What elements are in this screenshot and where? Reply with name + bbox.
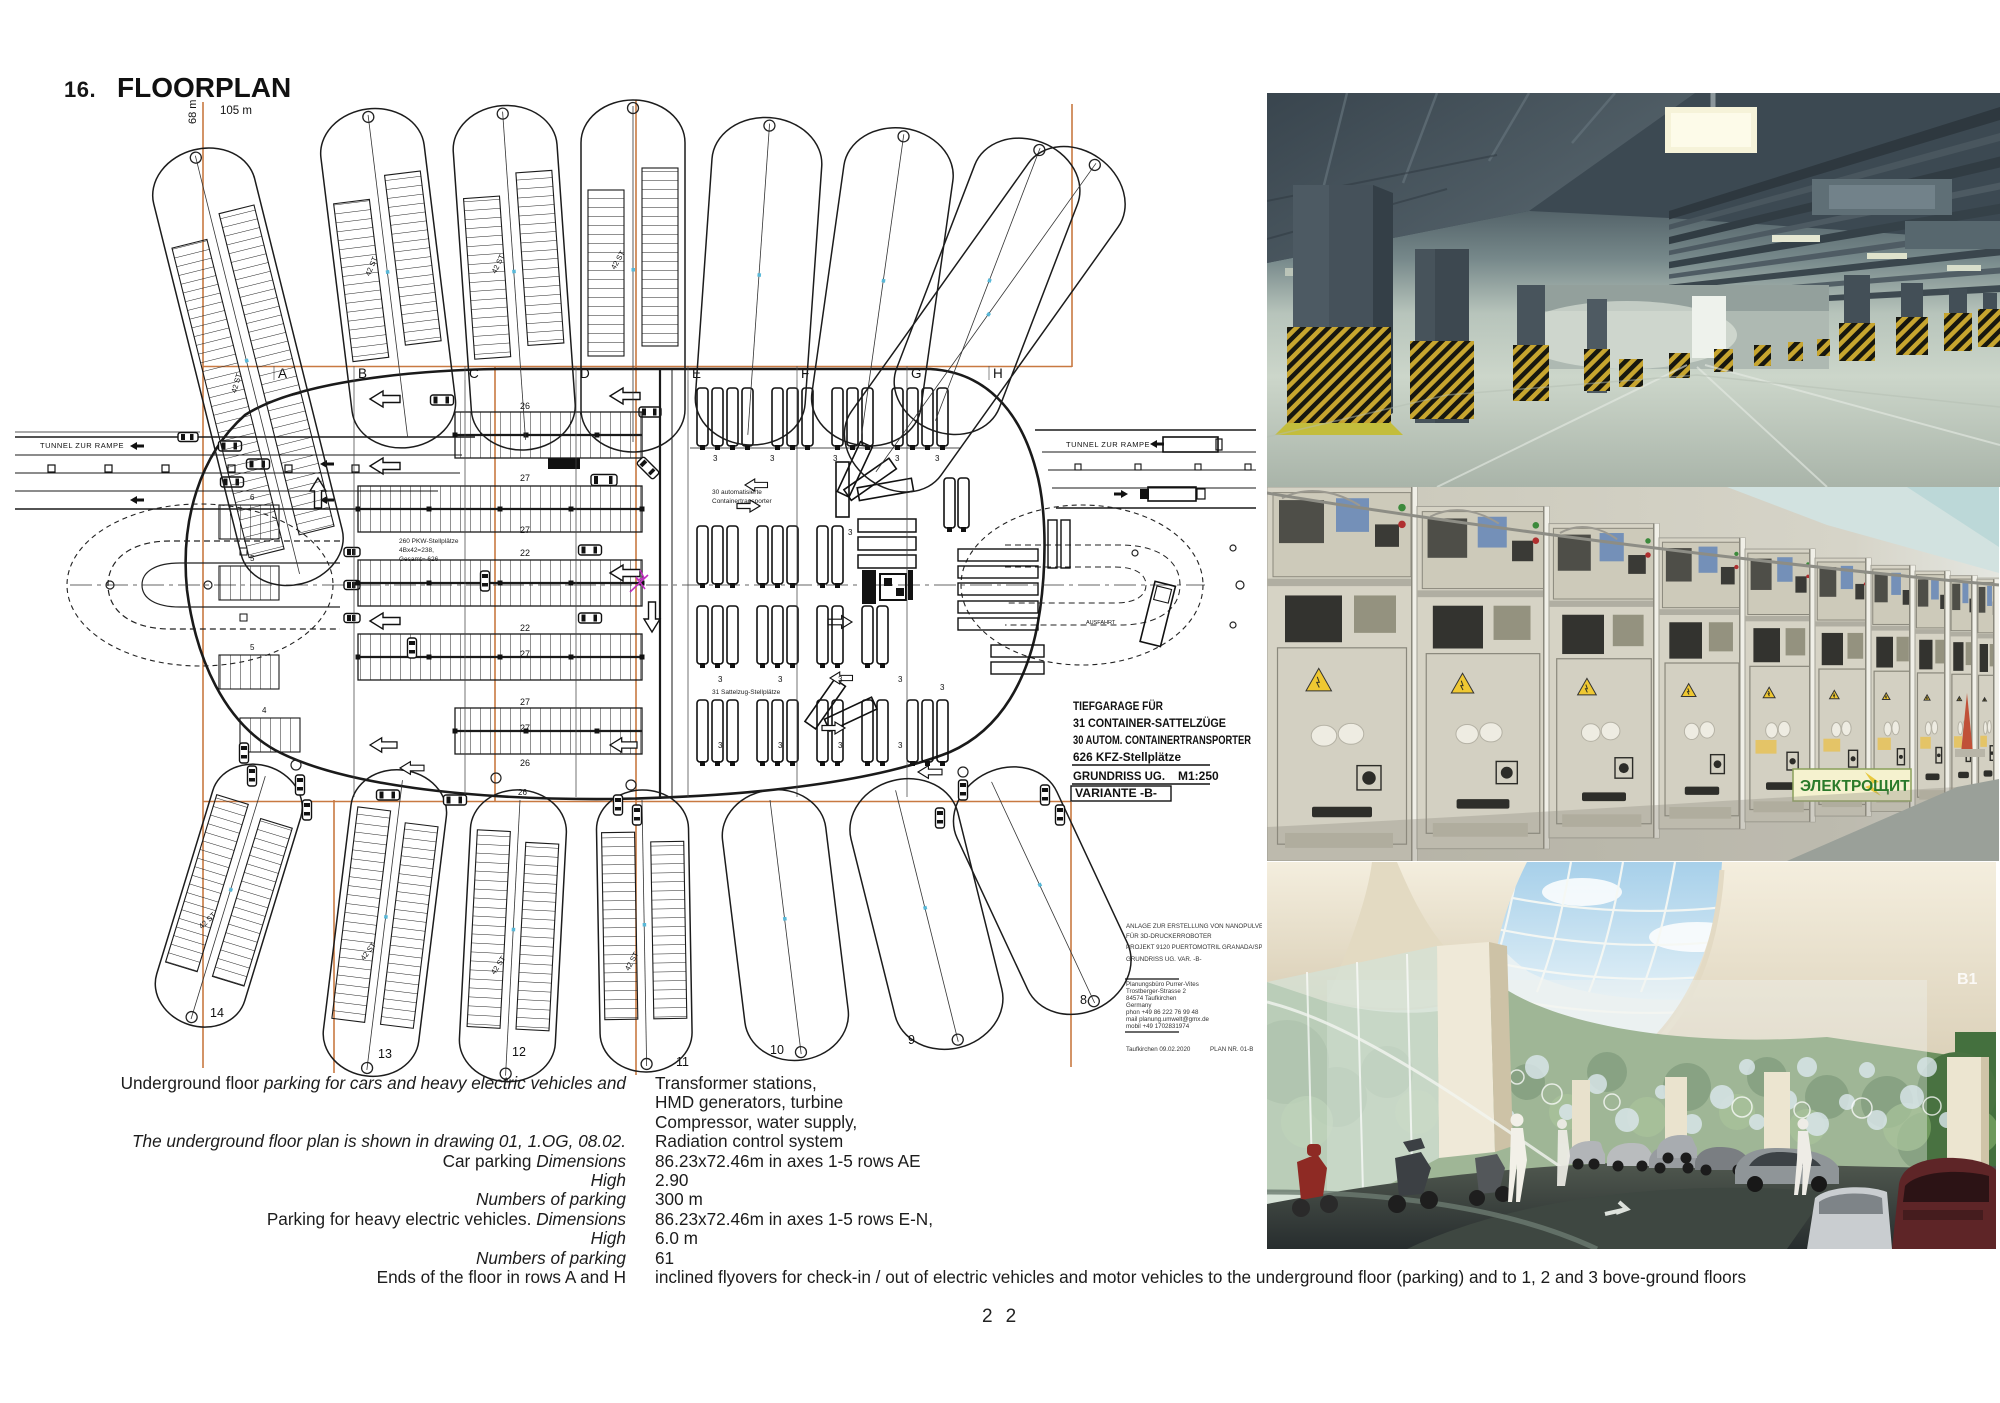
svg-text:B1: B1: [1957, 971, 1978, 988]
svg-text:Planungsbüro Purrer-Vites: Planungsbüro Purrer-Vites: [1126, 981, 1199, 988]
svg-text:PLAN NR. 01-B: PLAN NR. 01-B: [1210, 1046, 1253, 1053]
svg-text:M1:250: M1:250: [1178, 769, 1219, 783]
svg-text:GRUNDRISS UG.: GRUNDRISS UG.: [1073, 769, 1165, 783]
svg-text:13: 13: [378, 1047, 392, 1061]
svg-text:Trostberger-Strasse 2: Trostberger-Strasse 2: [1126, 988, 1187, 995]
svg-text:PROJEKT 9120 PUERTOMOTRIL GRAN: PROJEKT 9120 PUERTOMOTRIL GRANADA/SPANIE…: [1126, 944, 1262, 951]
svg-text:3: 3: [898, 675, 903, 684]
svg-text:Gesamt= 626: Gesamt= 626: [399, 556, 439, 563]
svg-text:26: 26: [520, 401, 530, 411]
svg-text:3: 3: [718, 741, 723, 750]
svg-text:27: 27: [520, 697, 530, 707]
svg-text:C: C: [469, 366, 479, 381]
svg-text:105 m: 105 m: [220, 105, 252, 117]
svg-text:3: 3: [770, 454, 775, 463]
svg-text:626 KFZ-Stellplätze: 626 KFZ-Stellplätze: [1073, 750, 1181, 764]
svg-text:3: 3: [898, 741, 903, 750]
svg-text:27: 27: [520, 525, 530, 535]
svg-text:14: 14: [210, 1006, 224, 1020]
svg-text:31 Sattelzug-Stellplätze: 31 Sattelzug-Stellplätze: [712, 689, 781, 696]
svg-text:GRUNDRISS UG. VAR. -B-: GRUNDRISS UG. VAR. -B-: [1126, 956, 1202, 963]
svg-text:3: 3: [935, 454, 940, 463]
svg-text:3: 3: [940, 683, 945, 692]
svg-text:3: 3: [838, 741, 843, 750]
svg-text:H: H: [993, 366, 1003, 381]
svg-text:5: 5: [250, 643, 255, 652]
svg-text:27: 27: [520, 649, 530, 659]
svg-text:TIEFGARAGE FÜR: TIEFGARAGE FÜR: [1073, 698, 1163, 713]
svg-text:3: 3: [848, 528, 853, 537]
svg-text:4Bx42=238,: 4Bx42=238,: [399, 547, 434, 554]
svg-text:31 CONTAINER-SATTELZÜGE: 31 CONTAINER-SATTELZÜGE: [1073, 715, 1226, 730]
svg-text:8: 8: [1080, 993, 1087, 1007]
svg-text:11: 11: [676, 1055, 689, 1069]
svg-text:3: 3: [713, 454, 718, 463]
svg-text:27: 27: [520, 473, 530, 483]
svg-text:12: 12: [512, 1045, 526, 1059]
svg-text:ANLAGE ZUR ERSTELLUNG VON NANO: ANLAGE ZUR ERSTELLUNG VON NANOPULVER: [1126, 923, 1262, 930]
svg-text:260 PKW-Stellplätze: 260 PKW-Stellplätze: [399, 538, 459, 545]
svg-text:TUNNEL ZUR RAMPE: TUNNEL ZUR RAMPE: [1066, 440, 1150, 449]
svg-text:30 AUTOM. CONTAINERTRANSPORTER: 30 AUTOM. CONTAINERTRANSPORTER: [1073, 733, 1251, 747]
svg-text:3: 3: [778, 675, 783, 684]
svg-text:mail planung.umwelt@gmx.de: mail planung.umwelt@gmx.de: [1126, 1016, 1210, 1023]
svg-text:9: 9: [908, 1033, 915, 1047]
svg-text:G: G: [911, 366, 922, 381]
svg-text:FÜR 3D-DRUCKERROBOTER: FÜR 3D-DRUCKERROBOTER: [1126, 933, 1212, 940]
svg-text:22: 22: [520, 623, 530, 633]
svg-text:TUNNEL ZUR RAMPE: TUNNEL ZUR RAMPE: [40, 441, 124, 450]
svg-text:27: 27: [520, 723, 530, 733]
svg-text:VARIANTE -B-: VARIANTE -B-: [1075, 786, 1157, 800]
svg-text:26: 26: [520, 758, 530, 768]
svg-text:3: 3: [895, 454, 900, 463]
svg-text:3: 3: [838, 675, 843, 684]
svg-text:3: 3: [718, 675, 723, 684]
svg-text:B: B: [358, 366, 367, 381]
svg-text:84574 Taufkirchen: 84574 Taufkirchen: [1126, 995, 1177, 1002]
svg-text:26: 26: [518, 788, 527, 797]
svg-text:22: 22: [520, 548, 530, 558]
svg-text:mobil +49 1702831974: mobil +49 1702831974: [1126, 1023, 1190, 1030]
svg-text:4: 4: [262, 706, 267, 715]
svg-text:Taufkirchen 09.02.2020: Taufkirchen 09.02.2020: [1126, 1046, 1191, 1053]
svg-text:AUSFAHRT: AUSFAHRT: [1086, 620, 1116, 626]
svg-text:68 m: 68 m: [187, 100, 199, 124]
svg-text:phon +49 86 222 76 99 48: phon +49 86 222 76 99 48: [1126, 1009, 1199, 1016]
svg-text:Germany: Germany: [1126, 1002, 1152, 1009]
svg-text:3: 3: [778, 741, 783, 750]
svg-text:10: 10: [770, 1043, 784, 1057]
